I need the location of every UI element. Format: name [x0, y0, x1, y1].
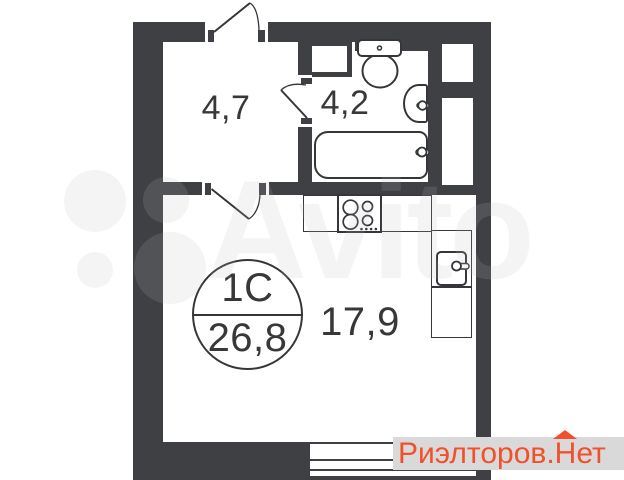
unit-total-area-label: 26,8 [192, 316, 303, 360]
bathroom-door-swing [281, 84, 307, 118]
watermark-text-prefix: Риэлторов. [398, 437, 555, 470]
jamb-gap [265, 22, 268, 42]
toilet-ledge [355, 42, 428, 51]
jamb-gap [298, 75, 312, 78]
avito-logo-circle [77, 252, 113, 288]
entrance-door-jamb-left [207, 30, 214, 42]
avito-logo-circle [143, 177, 189, 223]
jamb-gap [298, 125, 312, 128]
floor-plan-canvas: 4,7 4,2 17,9 1С 26,8 [0, 0, 624, 480]
hallway-area-label: 4,7 [186, 90, 266, 126]
jamb-gap [205, 22, 208, 42]
bathroom-area-label: 4,2 [305, 85, 385, 121]
avito-logo-circle [64, 170, 126, 232]
wall-bottom-left [133, 442, 310, 480]
watermark-text-suffix: ет [576, 437, 605, 470]
bathroom-sink [403, 84, 428, 123]
avito-logo-circle [134, 232, 206, 304]
realtor-watermark-text: Риэлторов.Нет [398, 439, 606, 469]
duct-shaft-upper [442, 44, 473, 82]
wall-top-right [267, 22, 491, 42]
jamb-gap [202, 182, 205, 195]
entrance-door-swing [214, 3, 259, 32]
bath-door-jamb-top [301, 78, 312, 84]
entrance-door-jamb-right [258, 30, 265, 42]
watermark-house-letter-text: Н [555, 437, 577, 470]
realtor-watermark-band: Риэлторов.Нет [393, 437, 624, 470]
window-outer-sill [310, 476, 476, 480]
house-roof-icon [553, 430, 577, 439]
avito-watermark-text: Avito [206, 160, 531, 300]
wall-top-left [133, 22, 205, 42]
vent-shaft [312, 46, 347, 72]
watermark-house-letter: Н [555, 439, 577, 469]
